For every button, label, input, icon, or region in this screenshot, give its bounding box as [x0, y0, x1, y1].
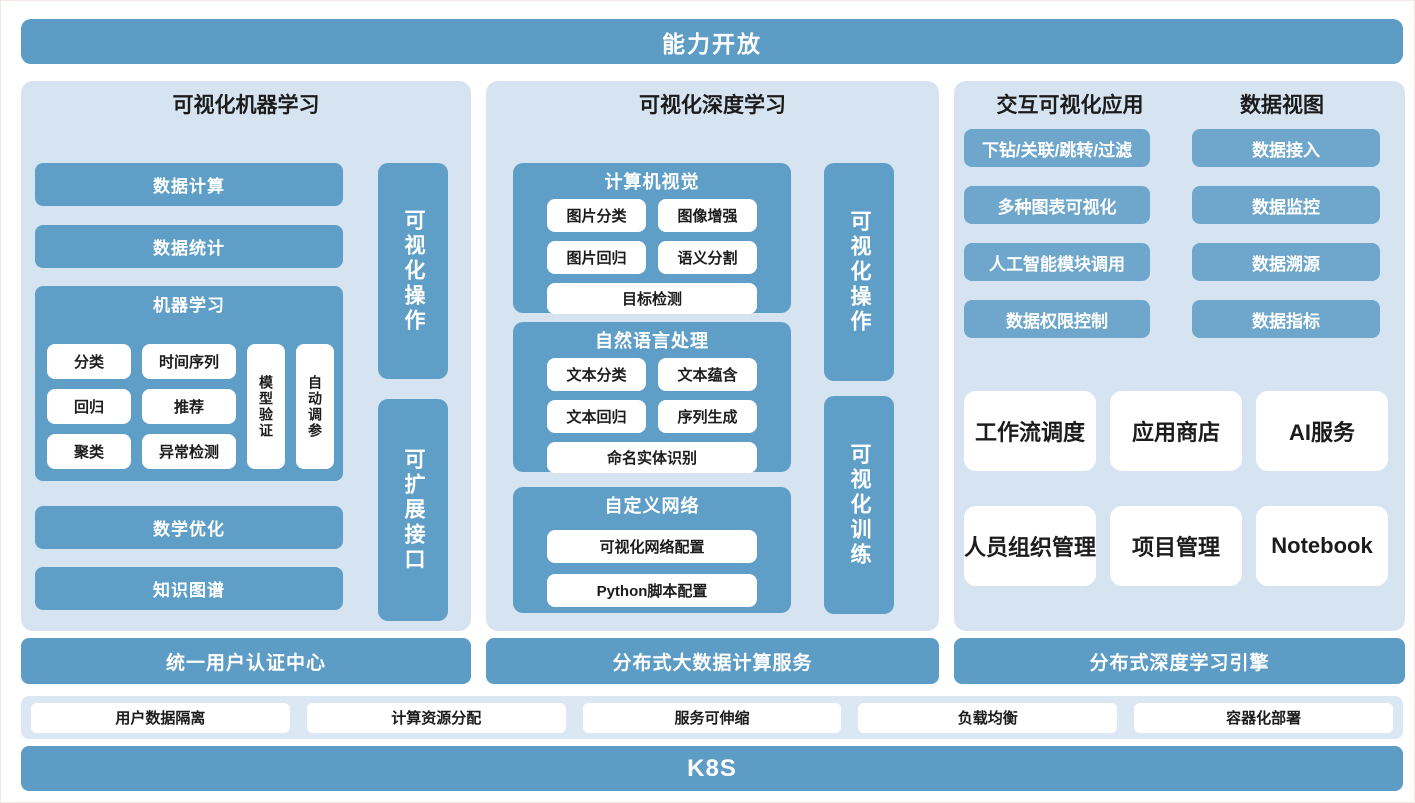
visual-deep-learning-sidebars: 可视化操作 可视化训练 — [824, 163, 894, 614]
right-panel-titles: 交互可视化应用 数据视图 — [964, 81, 1388, 118]
visual-training-bar: 可视化训练 — [824, 396, 894, 614]
unified-user-auth-bar: 统一用户认证中心 — [21, 638, 471, 684]
ai-module-invocation-button: 人工智能模块调用 — [964, 243, 1150, 281]
visual-operation-bar: 可视化操作 — [378, 163, 448, 379]
data-access-button: 数据接入 — [1192, 129, 1380, 167]
sequence-generation-pill: 序列生成 — [658, 400, 757, 433]
k8s-bar: K8S — [21, 746, 1403, 791]
interactive-visualization-title: 交互可视化应用 — [964, 94, 1176, 118]
auto-tuning-pill: 自动调参 — [296, 344, 334, 469]
image-enhancement-pill: 图像增强 — [658, 199, 757, 232]
visual-deep-learning-panel: 可视化深度学习 计算机视觉 图片分类 图像增强 图片回归 语义分割 目标检测 — [486, 81, 939, 631]
nlp-group: 自然语言处理 文本分类 文本蕴含 文本回归 序列生成 命名实体识别 — [513, 322, 791, 472]
distributed-bigdata-computing-bar: 分布式大数据计算服务 — [486, 638, 939, 684]
time-series-pill: 时间序列 — [142, 344, 236, 379]
text-classification-pill: 文本分类 — [547, 358, 646, 391]
semantic-segmentation-pill: 语义分割 — [658, 241, 757, 274]
clustering-pill: 聚类 — [47, 434, 131, 469]
classification-pill: 分类 — [47, 344, 131, 379]
custom-network-title: 自定义网络 — [547, 493, 757, 519]
distributed-deep-learning-engine-bar: 分布式深度学习引擎 — [954, 638, 1405, 684]
visual-machine-learning-sidebars: 可视化操作 可扩展接口 — [378, 163, 448, 621]
image-classification-pill: 图片分类 — [547, 199, 646, 232]
knowledge-graph-box: 知识图谱 — [35, 567, 343, 610]
recommendation-pill: 推荐 — [142, 389, 236, 424]
model-validation-pill: 模型验证 — [247, 344, 285, 469]
service-scalability-pill: 服务可伸缩 — [583, 703, 842, 733]
containerized-deployment-pill: 容器化部署 — [1134, 703, 1393, 733]
visual-machine-learning-stack: 数据计算 数据统计 机器学习 分类 时间序列 模型验证 自动调参 回归 推荐 聚… — [35, 163, 343, 621]
text-regression-pill: 文本回归 — [547, 400, 646, 433]
data-permission-control-button: 数据权限控制 — [964, 300, 1150, 338]
data-monitoring-button: 数据监控 — [1192, 186, 1380, 224]
data-statistics-box: 数据统计 — [35, 225, 343, 268]
math-optimization-box: 数学优化 — [35, 506, 343, 549]
capability-open-banner: 能力开放 — [21, 19, 1403, 64]
text-entailment-pill: 文本蕴含 — [658, 358, 757, 391]
nlp-grid: 文本分类 文本蕴含 文本回归 序列生成 — [547, 358, 757, 433]
visual-machine-learning-title: 可视化机器学习 — [21, 81, 471, 118]
main-columns: 可视化机器学习 数据计算 数据统计 机器学习 分类 时间序列 模型验证 自动调参… — [21, 81, 1403, 631]
nlp-title: 自然语言处理 — [547, 328, 757, 354]
computer-vision-grid: 图片分类 图像增强 图片回归 语义分割 — [547, 199, 757, 274]
named-entity-recognition-pill: 命名实体识别 — [547, 442, 757, 473]
interactive-visualization-panel: 交互可视化应用 数据视图 下钻/关联/跳转/过滤 数据接入 多种图表可视化 数据… — [954, 81, 1405, 631]
visual-machine-learning-body: 数据计算 数据统计 机器学习 分类 时间序列 模型验证 自动调参 回归 推荐 聚… — [21, 163, 471, 621]
visual-deep-learning-stack: 计算机视觉 图片分类 图像增强 图片回归 语义分割 目标检测 自然语言处理 文本… — [513, 163, 791, 614]
right-panel-buttons: 下钻/关联/跳转/过滤 数据接入 多种图表可视化 数据监控 人工智能模块调用 数… — [964, 129, 1388, 338]
compute-resource-allocation-pill: 计算资源分配 — [307, 703, 566, 733]
visual-deep-learning-body: 计算机视觉 图片分类 图像增强 图片回归 语义分割 目标检测 自然语言处理 文本… — [486, 163, 939, 614]
personnel-org-management-card: 人员组织管理 — [964, 506, 1096, 586]
right-panel-cards: 工作流调度 应用商店 AI服务 人员组织管理 项目管理 Notebook — [964, 391, 1388, 586]
notebook-card: Notebook — [1256, 506, 1388, 586]
data-tracing-button: 数据溯源 — [1192, 243, 1380, 281]
image-regression-pill: 图片回归 — [547, 241, 646, 274]
machine-learning-grid: 分类 时间序列 模型验证 自动调参 回归 推荐 聚类 异常检测 — [47, 344, 331, 469]
workflow-scheduling-card: 工作流调度 — [964, 391, 1096, 471]
visual-operation-bar: 可视化操作 — [824, 163, 894, 381]
visual-machine-learning-panel: 可视化机器学习 数据计算 数据统计 机器学习 分类 时间序列 模型验证 自动调参… — [21, 81, 471, 631]
machine-learning-group-title: 机器学习 — [47, 294, 331, 318]
load-balancing-pill: 负载均衡 — [858, 703, 1117, 733]
chart-visualization-button: 多种图表可视化 — [964, 186, 1150, 224]
object-detection-pill: 目标检测 — [547, 283, 757, 314]
app-store-card: 应用商店 — [1110, 391, 1242, 471]
computer-vision-group: 计算机视觉 图片分类 图像增强 图片回归 语义分割 目标检测 — [513, 163, 791, 313]
data-computation-box: 数据计算 — [35, 163, 343, 206]
service-bars-row: 统一用户认证中心 分布式大数据计算服务 分布式深度学习引擎 — [21, 638, 1403, 684]
data-metrics-button: 数据指标 — [1192, 300, 1380, 338]
infrastructure-band: 用户数据隔离 计算资源分配 服务可伸缩 负载均衡 容器化部署 — [21, 696, 1403, 739]
user-data-isolation-pill: 用户数据隔离 — [31, 703, 290, 733]
visual-network-config-pill: 可视化网络配置 — [547, 530, 757, 563]
drill-link-jump-filter-button: 下钻/关联/跳转/过滤 — [964, 129, 1150, 167]
python-script-config-pill: Python脚本配置 — [547, 574, 757, 607]
computer-vision-title: 计算机视觉 — [547, 169, 757, 195]
regression-pill: 回归 — [47, 389, 131, 424]
extensible-interface-bar: 可扩展接口 — [378, 399, 448, 621]
data-view-title: 数据视图 — [1176, 94, 1388, 118]
machine-learning-group: 机器学习 分类 时间序列 模型验证 自动调参 回归 推荐 聚类 异常检测 — [35, 286, 343, 481]
custom-network-group: 自定义网络 可视化网络配置 Python脚本配置 — [513, 487, 791, 613]
architecture-diagram: 能力开放 可视化机器学习 数据计算 数据统计 机器学习 分类 时间序列 模型验证… — [0, 0, 1415, 803]
ai-service-card: AI服务 — [1256, 391, 1388, 471]
visual-deep-learning-title: 可视化深度学习 — [486, 81, 939, 118]
anomaly-detection-pill: 异常检测 — [142, 434, 236, 469]
project-management-card: 项目管理 — [1110, 506, 1242, 586]
